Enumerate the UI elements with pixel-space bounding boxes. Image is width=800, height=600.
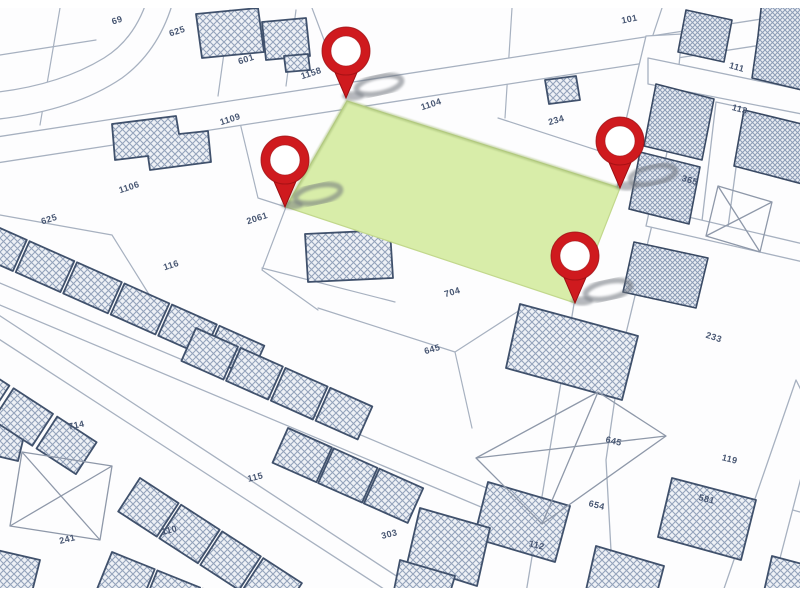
cadastral-map-canvas: 6962560111581011111131109110423436511062… (0, 0, 800, 600)
top-white-border (0, 0, 800, 8)
pin-ring (327, 32, 366, 71)
cadastral-map-image: 6962560111581011111131109110423436511062… (0, 0, 800, 600)
building-footprint (196, 8, 264, 58)
pin-ring (601, 122, 640, 161)
bottom-white-border (0, 588, 800, 600)
pin-ring (556, 237, 595, 276)
pin-ring (266, 141, 305, 180)
building-footprint (545, 76, 580, 104)
building-footprint (678, 10, 732, 62)
